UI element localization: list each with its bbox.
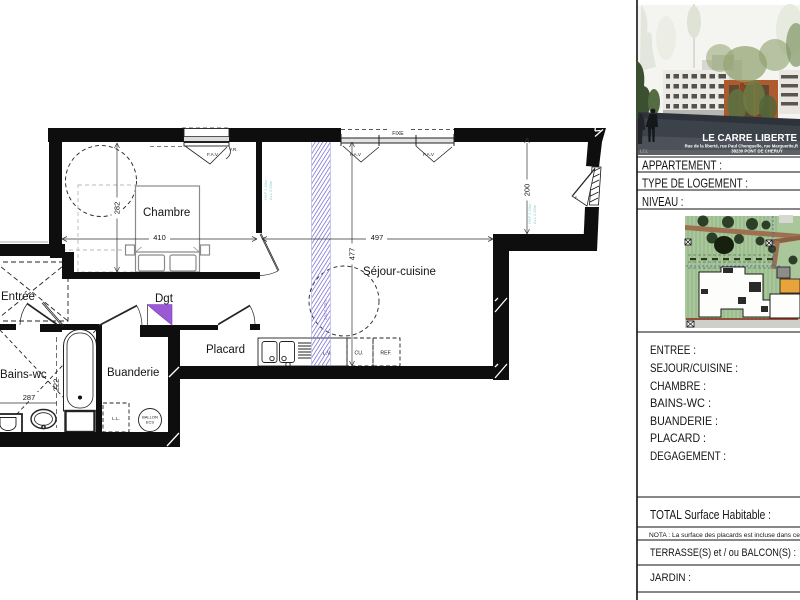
svg-text:APPARTEMENT :: APPARTEMENT : <box>642 158 722 173</box>
svg-text:BUANDERIE :: BUANDERIE : <box>650 414 718 428</box>
svg-text:282: 282 <box>113 202 122 215</box>
svg-text:Dgt: Dgt <box>155 293 174 305</box>
svg-text:ENTREE :: ENTREE : <box>650 343 696 357</box>
svg-text:BAINS-WC :: BAINS-WC : <box>650 396 711 410</box>
svg-text:Chambre: Chambre <box>143 207 190 219</box>
svg-text:Séjour-cuisine: Séjour-cuisine <box>363 266 436 278</box>
svg-text:ALL 0.45m: ALL 0.45m <box>532 204 537 224</box>
svg-text:38230 PONT DE CHERUY: 38230 PONT DE CHERUY <box>731 149 783 154</box>
svg-text:REF.: REF. <box>380 351 391 357</box>
svg-text:410: 410 <box>153 233 166 242</box>
svg-text:Bains-wc: Bains-wc <box>0 369 47 381</box>
svg-text:Entrée: Entrée <box>1 291 35 303</box>
svg-text:NOTA : La surface des placards: NOTA : La surface des placards est inclu… <box>649 532 800 539</box>
svg-text:V.R.: V.R. <box>229 147 238 152</box>
svg-text:477: 477 <box>348 248 357 261</box>
svg-text:NIVEAU :: NIVEAU : <box>642 194 684 209</box>
svg-text:200: 200 <box>523 184 532 197</box>
svg-text:TYPE DE LOGEMENT :: TYPE DE LOGEMENT : <box>642 176 748 191</box>
svg-text:TERRASSE(S) et / ou BALCON(S): TERRASSE(S) et / ou BALCON(S) : <box>650 547 796 559</box>
svg-text:LCL: LCL <box>640 149 649 154</box>
svg-text:F.A.V: F.A.V <box>207 152 219 157</box>
svg-text:F.: F. <box>575 196 578 200</box>
svg-text:497: 497 <box>371 233 384 242</box>
svg-text:L.L.: L.L. <box>112 416 120 421</box>
svg-text:222: 222 <box>52 379 61 392</box>
svg-text:287: 287 <box>23 393 36 402</box>
svg-text:Placard: Placard <box>206 344 245 356</box>
svg-text:JARDIN :: JARDIN : <box>650 572 691 584</box>
svg-text:DEGAGEMENT :: DEGAGEMENT : <box>650 449 726 463</box>
svg-text:240 2.70m: 240 2.70m <box>323 300 328 320</box>
svg-text:SEJOUR/CUISINE :: SEJOUR/CUISINE : <box>650 361 738 375</box>
svg-text:CU.: CU. <box>355 351 364 357</box>
svg-text:FIXE: FIXE <box>392 131 404 137</box>
svg-text:ALL 0.90m: ALL 0.90m <box>268 180 273 200</box>
svg-text:CHAMBRE :: CHAMBRE : <box>650 379 706 393</box>
svg-text:PLACARD :: PLACARD : <box>650 431 706 445</box>
svg-text:F.A.V: F.A.V <box>423 152 435 157</box>
svg-text:Buanderie: Buanderie <box>107 367 159 379</box>
svg-text:ECS: ECS <box>146 420 155 425</box>
svg-text:TOTAL Surface Habitable :: TOTAL Surface Habitable : <box>650 507 771 522</box>
svg-text:LE CARRE LIBERTE: LE CARRE LIBERTE <box>702 133 797 144</box>
